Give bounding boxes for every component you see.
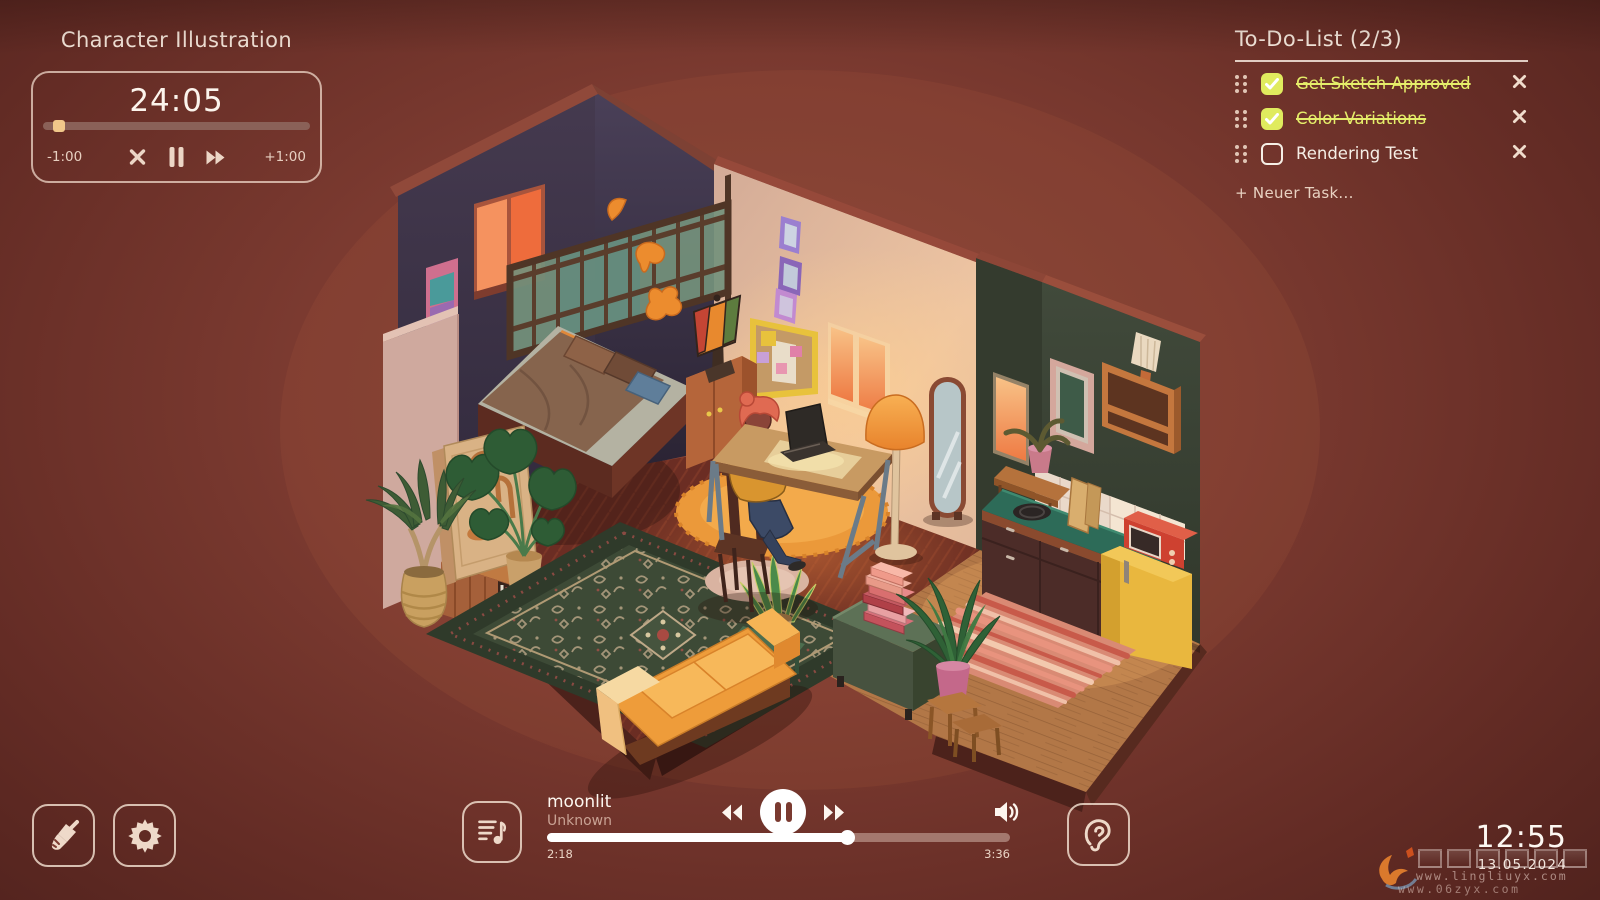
clock: 12:55 13.05.2024	[1476, 820, 1567, 873]
theme-brush-button[interactable]	[32, 804, 95, 867]
timer-skip-button[interactable]	[205, 149, 226, 166]
todo-remove-button[interactable]	[1511, 73, 1528, 94]
track-artist: Unknown	[547, 813, 612, 829]
todo-item-label: Rendering Test	[1296, 144, 1511, 163]
check-icon	[1265, 78, 1279, 90]
x-icon	[1511, 73, 1528, 90]
todo-remove-button[interactable]	[1511, 108, 1528, 129]
volume-button[interactable]	[993, 799, 1021, 825]
rewind-button[interactable]	[720, 803, 743, 822]
player-progress-bar[interactable]	[547, 833, 1010, 842]
fast-forward-icon	[205, 149, 226, 166]
fast-forward-button[interactable]	[823, 803, 846, 822]
player-progress-knob[interactable]	[840, 830, 855, 845]
paint-brush-icon	[46, 818, 82, 854]
app-screen: Character Illustration 24:05 -1:00	[0, 0, 1600, 900]
todo-item-label: Get Sketch Approved	[1296, 74, 1511, 93]
timer-cancel-button[interactable]	[127, 147, 147, 167]
pause-icon	[786, 802, 792, 822]
ear-icon	[1082, 816, 1116, 854]
timer-remaining: 24:05	[33, 83, 320, 119]
pause-icon	[167, 146, 185, 168]
clock-date: 13.05.2024	[1476, 857, 1567, 873]
todo-title: To-Do-List (2/3)	[1235, 27, 1528, 51]
todo-checkbox[interactable]	[1261, 143, 1283, 165]
speaker-icon	[993, 799, 1021, 825]
fast-forward-icon	[823, 803, 846, 822]
track-title: moonlit	[547, 792, 611, 812]
timer-add-button[interactable]: +1:00	[264, 149, 306, 165]
x-icon	[1511, 108, 1528, 125]
clock-time: 12:55	[1476, 820, 1567, 855]
todo-list: To-Do-List (2/3) Get Sketch Approved	[1235, 27, 1528, 202]
drag-handle-icon[interactable]	[1235, 110, 1250, 128]
todo-divider	[1235, 60, 1528, 62]
time-elapsed: 2:18	[547, 847, 573, 861]
transport-controls	[720, 789, 846, 835]
drag-handle-icon[interactable]	[1235, 75, 1250, 93]
ambient-sounds-button[interactable]	[1067, 803, 1130, 866]
todo-item-label: Color Variations	[1296, 109, 1511, 128]
add-task-button[interactable]: + Neuer Task...	[1235, 184, 1528, 202]
todo-item: Rendering Test	[1235, 136, 1528, 171]
todo-item: Get Sketch Approved	[1235, 66, 1528, 101]
timer-progress-bar	[43, 122, 310, 130]
watermark-url-2: www.06zyx.com	[1398, 882, 1521, 896]
drag-handle-icon[interactable]	[1235, 145, 1250, 163]
todo-checkbox[interactable]	[1261, 73, 1283, 95]
player-progress-fill	[547, 833, 848, 842]
todo-checkbox[interactable]	[1261, 108, 1283, 130]
rewind-icon	[720, 803, 743, 822]
x-icon	[127, 147, 147, 167]
timer-progress-handle	[53, 120, 65, 132]
time-total: 3:36	[940, 847, 1010, 861]
settings-button[interactable]	[113, 804, 176, 867]
timer-pause-button[interactable]	[167, 146, 185, 168]
playlist-button[interactable]	[462, 801, 522, 863]
pause-icon	[775, 802, 781, 822]
todo-item: Color Variations	[1235, 101, 1528, 136]
timer-subtract-button[interactable]: -1:00	[47, 149, 82, 165]
timer-card: 24:05 -1:00 +1:00	[31, 71, 322, 183]
x-icon	[1511, 143, 1528, 160]
watermark-logo-icon	[1372, 845, 1424, 891]
music-note-list-icon	[475, 815, 509, 849]
todo-count: (2/3)	[1350, 27, 1402, 51]
play-pause-button[interactable]	[760, 789, 806, 835]
session-title: Character Illustration	[31, 28, 322, 52]
gear-icon	[127, 818, 163, 854]
todo-remove-button[interactable]	[1511, 143, 1528, 164]
check-icon	[1265, 113, 1279, 125]
